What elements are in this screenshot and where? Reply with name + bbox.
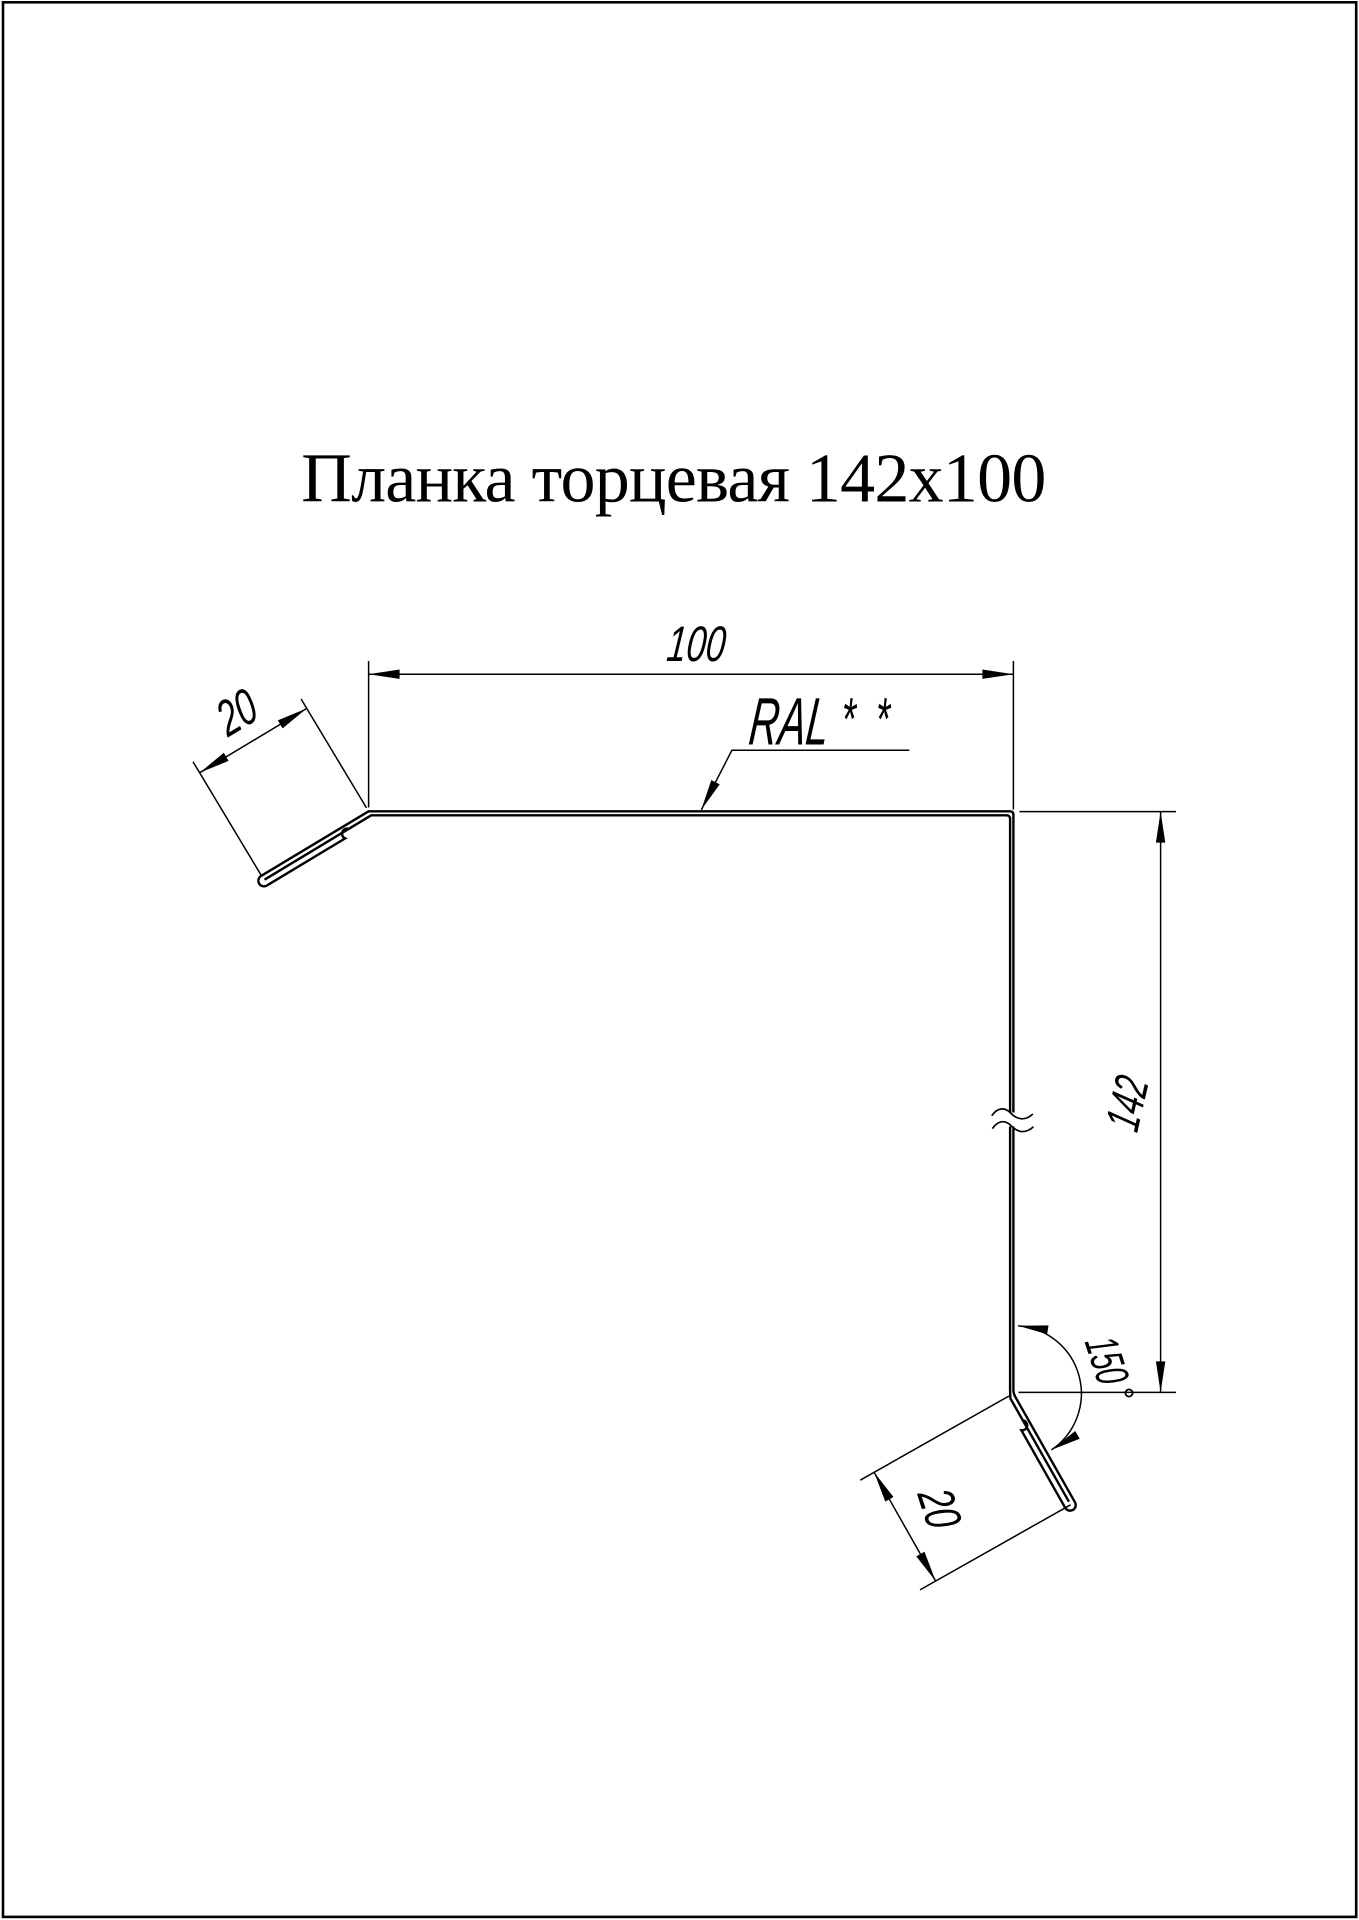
svg-text:100: 100 <box>664 617 728 672</box>
svg-text:Планка торцевая 142х100: Планка торцевая 142х100 <box>301 441 1045 518</box>
svg-text:RAL* *: RAL* * <box>746 684 898 759</box>
